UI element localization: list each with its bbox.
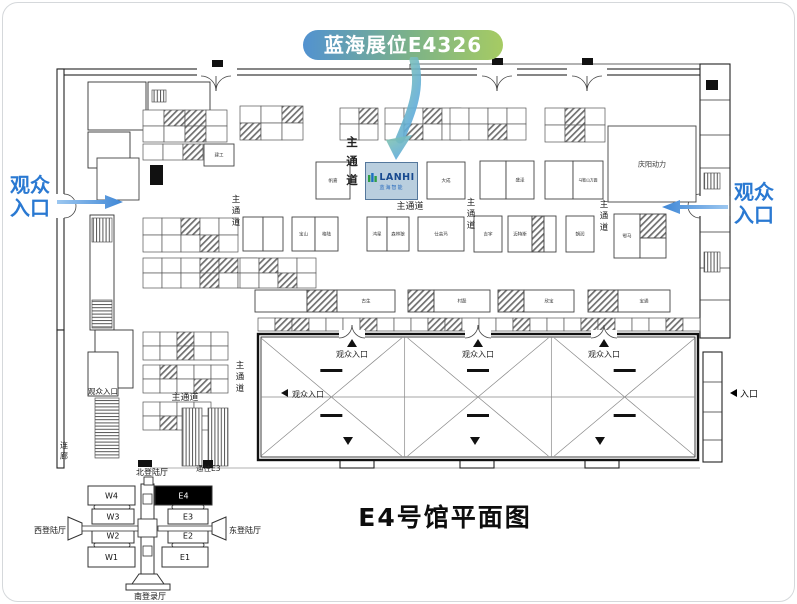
booth-cell bbox=[177, 379, 194, 393]
booth-cell bbox=[585, 125, 605, 142]
main-aisle-label: 道 bbox=[232, 217, 241, 228]
to-e3-label: 通往E3 bbox=[196, 463, 221, 473]
booth-cell bbox=[160, 365, 177, 379]
main-aisle-label: 道 bbox=[346, 173, 358, 187]
right-entrance-arrow-icon bbox=[660, 197, 730, 217]
wall-detail bbox=[492, 58, 503, 65]
booth-cell bbox=[258, 318, 275, 331]
booth-cell bbox=[530, 318, 547, 331]
inset-north-label: 北登陆厅 bbox=[136, 467, 168, 477]
booth-cell bbox=[164, 110, 185, 126]
hall-entrance-label: 观众入口 bbox=[588, 350, 620, 359]
hall-entrance-label: 观众入口 bbox=[292, 390, 324, 399]
booth-label: 迈特斯 bbox=[513, 231, 527, 238]
lanhi-logo-text: LANHI bbox=[379, 172, 414, 183]
booth-cell bbox=[259, 273, 278, 288]
lanhi-logo-icon bbox=[368, 173, 377, 182]
main-aisle-label: 主 bbox=[600, 199, 609, 210]
booth-label: 古生 bbox=[362, 298, 371, 305]
inset-hall-label: E1 bbox=[180, 553, 190, 562]
inset-corridor-bar bbox=[158, 526, 212, 531]
booth-cell bbox=[292, 318, 309, 331]
booth bbox=[640, 238, 666, 258]
booth-label: 宝山 bbox=[299, 231, 308, 238]
inset-south-gate bbox=[132, 574, 164, 584]
stair-block bbox=[95, 398, 119, 458]
truss-bar bbox=[614, 369, 636, 372]
booth-cell bbox=[565, 108, 585, 125]
booth-cell bbox=[450, 108, 469, 124]
booth-cell bbox=[160, 332, 177, 346]
booth-cell bbox=[259, 258, 278, 273]
main-aisle-label: 主 bbox=[232, 194, 241, 205]
inset-hall-label: W2 bbox=[107, 532, 120, 541]
right-entrance-label: 观众 入口 bbox=[734, 181, 774, 227]
left-entrance-arrow-icon bbox=[57, 192, 127, 212]
main-aisle-label: 主 bbox=[346, 135, 358, 149]
booth-cell bbox=[282, 106, 303, 123]
inset-south-label: 南登录厅 bbox=[134, 591, 166, 601]
main-aisle-label: 通 bbox=[346, 154, 358, 168]
inset-east-label: 东登陆厅 bbox=[229, 525, 261, 535]
main-aisle-label: 通 bbox=[467, 209, 476, 220]
booth-cell bbox=[411, 318, 428, 331]
booth-cell bbox=[160, 379, 177, 393]
main-aisle-label: 通 bbox=[236, 372, 245, 383]
inset-corridor-bar bbox=[172, 505, 204, 509]
booth-label: 宝通 bbox=[640, 298, 649, 305]
booth-cell bbox=[143, 126, 164, 142]
booth-cell bbox=[360, 318, 377, 331]
booth-label: 鄂马 bbox=[623, 233, 632, 240]
main-aisle-label: 道 bbox=[600, 222, 609, 233]
booth bbox=[498, 290, 524, 312]
inset-west-label: 西登陆厅 bbox=[34, 525, 66, 535]
booth-cell bbox=[200, 218, 219, 235]
booth-cell bbox=[160, 346, 177, 360]
booth bbox=[588, 290, 618, 312]
booth-cell bbox=[282, 123, 303, 140]
truss-bar bbox=[320, 369, 342, 372]
main-aisle-label: 主 bbox=[467, 197, 476, 208]
booth-cell bbox=[581, 318, 598, 331]
inset-center-detail bbox=[143, 494, 152, 504]
booth-cell bbox=[194, 379, 211, 393]
booth-cell bbox=[162, 235, 181, 252]
booth-cell bbox=[469, 124, 488, 140]
booth-label: 格陆 bbox=[322, 231, 331, 238]
booth bbox=[263, 217, 283, 251]
left-entrance-label: 观众 入口 bbox=[10, 174, 50, 220]
booth-cell bbox=[143, 110, 164, 126]
booth-cell bbox=[194, 365, 211, 379]
booth-cell bbox=[164, 126, 185, 142]
lanhi-logo-row: LANHI bbox=[368, 172, 414, 183]
inset-corridor-bar bbox=[94, 543, 130, 547]
booth-cell bbox=[206, 126, 227, 142]
hall-locator-inset: W4W3W2W1E4E3E2E1北登陆厅南登录厅西登陆厅东登陆厅 bbox=[34, 467, 261, 601]
hall-entrance-label: 观众入口 bbox=[336, 350, 368, 359]
booth-banner: 蓝海展位E4326 bbox=[303, 30, 503, 60]
entrance-marker-icon bbox=[730, 389, 737, 397]
truss-bar bbox=[467, 369, 489, 372]
booth-cell bbox=[394, 318, 411, 331]
booth-cell bbox=[160, 402, 177, 416]
booth-cell bbox=[297, 273, 316, 288]
booth-cell bbox=[143, 402, 160, 416]
booth-cell bbox=[545, 108, 565, 125]
inset-hall-label: W1 bbox=[105, 553, 118, 562]
inset-corridor-bar bbox=[82, 526, 138, 531]
banner-arrow-icon bbox=[372, 57, 428, 169]
booth-cell bbox=[340, 108, 359, 124]
inset-hall-label: W3 bbox=[107, 513, 120, 522]
booth-cell bbox=[479, 318, 496, 331]
booth-cell bbox=[462, 318, 479, 331]
inset-east-gate bbox=[212, 517, 226, 540]
inset-corridor-bar bbox=[94, 505, 130, 509]
corridor-label: 连 bbox=[60, 440, 68, 450]
booth-cell bbox=[240, 106, 261, 123]
stair-block bbox=[208, 408, 228, 466]
booth bbox=[408, 290, 434, 312]
inset-north-stub bbox=[144, 477, 153, 485]
booth-label: 鸿星 bbox=[373, 231, 382, 238]
booth-label: 森林狼 bbox=[391, 231, 405, 238]
booth-cell bbox=[143, 235, 162, 252]
booth-cell bbox=[162, 218, 181, 235]
booth-cell bbox=[513, 318, 530, 331]
stair-block bbox=[92, 300, 112, 328]
booth-cell bbox=[177, 346, 194, 360]
booth-cell bbox=[297, 258, 316, 273]
booth bbox=[532, 216, 544, 252]
booth-cell bbox=[181, 218, 200, 235]
booth-label: 欣宝 bbox=[545, 298, 554, 305]
booth-cell bbox=[598, 318, 615, 331]
booth-cell bbox=[649, 318, 666, 331]
booth-cell bbox=[240, 273, 259, 288]
booth-cell bbox=[507, 108, 526, 124]
booth-cell bbox=[160, 416, 177, 430]
booth-cell bbox=[261, 123, 282, 140]
booth-label: 帆嘉 bbox=[329, 177, 338, 184]
booth-cell bbox=[194, 346, 211, 360]
booth-cell bbox=[545, 125, 565, 142]
inset-corridor-bar bbox=[172, 543, 204, 547]
booth-cell bbox=[200, 258, 219, 273]
wall-detail bbox=[150, 165, 163, 185]
main-aisle-label: 通 bbox=[600, 211, 609, 222]
booth-cell bbox=[469, 108, 488, 124]
booth-cell bbox=[683, 318, 700, 331]
booth-cell bbox=[211, 379, 228, 393]
inset-hall-label: E3 bbox=[183, 513, 193, 522]
booth-cell bbox=[585, 108, 605, 125]
inset-south-base bbox=[126, 584, 170, 590]
main-aisle-label: 主 bbox=[236, 360, 245, 371]
booth-cell bbox=[143, 258, 162, 273]
stair-block bbox=[704, 173, 720, 189]
booth-cell bbox=[211, 332, 228, 346]
main-aisle-label: 道 bbox=[467, 220, 476, 231]
booth-cell bbox=[219, 235, 238, 252]
booth-cell bbox=[666, 318, 683, 331]
booth-cell bbox=[185, 110, 206, 126]
booth-cell bbox=[143, 273, 162, 288]
booth bbox=[255, 290, 307, 312]
main-aisle-label: 主通道 bbox=[396, 200, 423, 212]
lanhi-booth: LANHI 蓝海智能 bbox=[365, 162, 418, 200]
booth-cell bbox=[200, 273, 219, 288]
main-aisle-label: 通 bbox=[232, 206, 241, 217]
main-aisle-label: 观众入口 bbox=[88, 387, 118, 396]
booth-cell bbox=[200, 235, 219, 252]
truss-bar bbox=[467, 414, 489, 417]
booth-cell bbox=[240, 258, 259, 273]
booth bbox=[480, 161, 506, 199]
booth bbox=[307, 290, 337, 312]
inset-hall-label: E4 bbox=[178, 492, 188, 501]
hall-entrance-label: 观众入口 bbox=[462, 350, 494, 359]
booth-cell bbox=[326, 318, 343, 331]
booth-cell bbox=[278, 273, 297, 288]
booth-cell bbox=[143, 218, 162, 235]
booth-cell bbox=[377, 318, 394, 331]
stair-block bbox=[152, 90, 166, 102]
small-entrance-label: 入口 bbox=[740, 389, 758, 400]
booth-cell bbox=[261, 106, 282, 123]
booth-cell bbox=[181, 235, 200, 252]
inset-west-gate bbox=[68, 517, 82, 540]
booth-cell bbox=[507, 124, 526, 140]
booth-label: 朝润 bbox=[576, 231, 585, 238]
booth-cell bbox=[278, 258, 297, 273]
booth-cell bbox=[143, 365, 160, 379]
booth-cell bbox=[194, 332, 211, 346]
booth-cell bbox=[496, 318, 513, 331]
booth-cell bbox=[143, 144, 163, 160]
booth-cell bbox=[428, 318, 445, 331]
truss-bar bbox=[614, 414, 636, 417]
lanhi-subtitle: 蓝海智能 bbox=[379, 184, 403, 191]
booth-cell bbox=[181, 273, 200, 288]
booth bbox=[243, 217, 263, 251]
booth-cell bbox=[206, 110, 227, 126]
booth-cell bbox=[219, 273, 238, 288]
booth-cell bbox=[181, 258, 200, 273]
booth-cell bbox=[488, 124, 507, 140]
booth bbox=[545, 161, 573, 199]
inset-hall-label: E2 bbox=[183, 532, 193, 541]
main-aisle-label: 主通道 bbox=[171, 391, 198, 403]
booth bbox=[640, 214, 666, 238]
adjacent-hall: 观众入口观众入口观众入口观众入口 bbox=[258, 325, 698, 460]
booth-cell bbox=[143, 379, 160, 393]
inset-hall-label: W4 bbox=[105, 492, 118, 501]
booth-cell bbox=[211, 365, 228, 379]
inset-center-detail bbox=[138, 519, 157, 537]
booth-cell bbox=[143, 416, 160, 430]
booth-cell bbox=[143, 346, 160, 360]
booth-cell bbox=[163, 144, 183, 160]
booth bbox=[544, 216, 556, 252]
stair-block bbox=[704, 252, 720, 272]
plan-title: E4号馆平面图 bbox=[330, 498, 560, 534]
booth-cell bbox=[211, 346, 228, 360]
wall-detail bbox=[582, 58, 593, 65]
booth-cell bbox=[565, 125, 585, 142]
stair-block bbox=[182, 408, 202, 466]
main-aisle-label: 道 bbox=[236, 383, 245, 394]
truss-bar bbox=[320, 414, 342, 417]
booth-cell bbox=[309, 318, 326, 331]
booth-cell bbox=[185, 126, 206, 142]
booth-cell bbox=[450, 124, 469, 140]
corridor-label: 廊 bbox=[60, 451, 68, 461]
booth-label: 马鞍山方圆 bbox=[579, 177, 598, 182]
inset-center-detail bbox=[143, 546, 152, 556]
wall-detail bbox=[212, 60, 223, 67]
booth-cell bbox=[547, 318, 564, 331]
wall-detail bbox=[138, 460, 152, 467]
booth-label: 庆阳动力 bbox=[638, 160, 666, 169]
booth-cell bbox=[240, 123, 261, 140]
booth-cell bbox=[564, 318, 581, 331]
booth-label: 村磊 bbox=[458, 298, 467, 305]
booth-cell bbox=[615, 318, 632, 331]
booth-label: 建工 bbox=[215, 152, 224, 159]
booth-cell bbox=[162, 258, 181, 273]
booth-cell bbox=[275, 318, 292, 331]
wall-detail bbox=[706, 80, 718, 90]
booth-label: 仕高玛 bbox=[434, 231, 448, 238]
booth-cell bbox=[632, 318, 649, 331]
booth-label: 大成 bbox=[442, 177, 451, 184]
booth-cell bbox=[177, 332, 194, 346]
booth-label: 吉宇 bbox=[484, 231, 493, 238]
booth-cell bbox=[143, 332, 160, 346]
booth-cell bbox=[177, 365, 194, 379]
booth-cell bbox=[488, 108, 507, 124]
booth-label: 盛泽 bbox=[516, 177, 525, 184]
stair-block bbox=[92, 218, 112, 242]
booth-cell bbox=[162, 273, 181, 288]
booth-cell bbox=[219, 258, 238, 273]
booth-cell bbox=[445, 318, 462, 331]
booth-cell bbox=[183, 144, 203, 160]
